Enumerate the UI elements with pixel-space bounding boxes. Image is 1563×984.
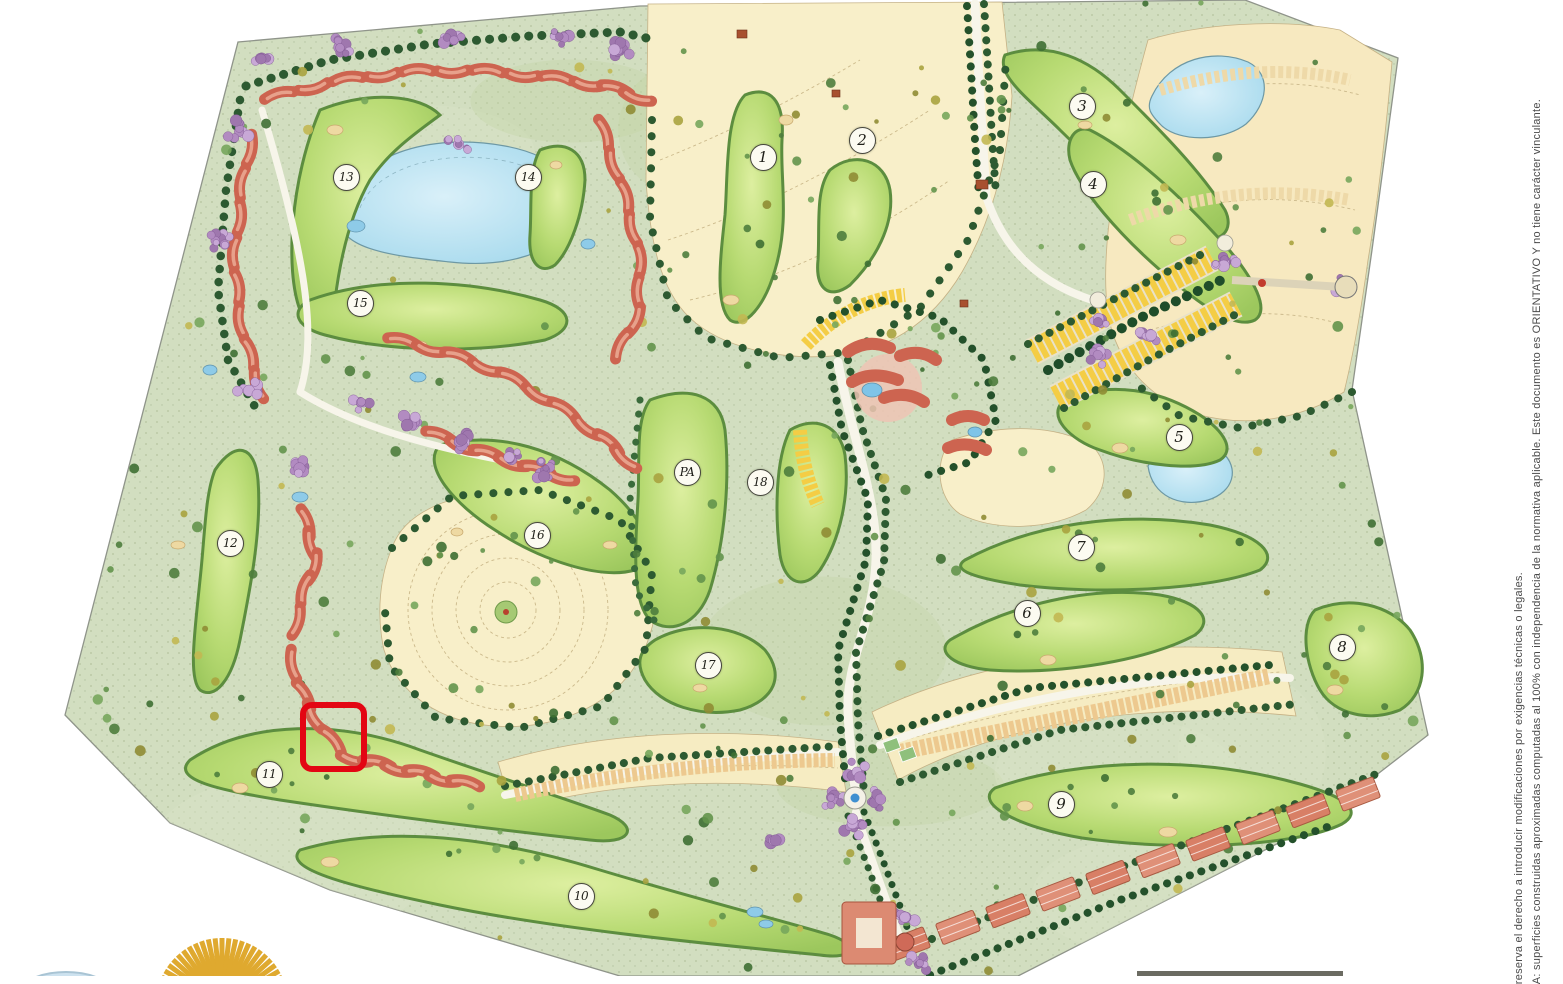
hole-marker-8: 8 — [1329, 634, 1356, 661]
disclaimer-line-1: A: superficies construidas aproximadas c… — [1531, 99, 1543, 984]
hole-marker-label: 13 — [339, 170, 353, 184]
hole-marker-label: 11 — [262, 767, 276, 781]
garden-plaza-1 — [1090, 292, 1106, 308]
clubhouse-pool — [862, 383, 882, 397]
hole-marker-label: 15 — [353, 296, 367, 310]
hole-marker-PA: PA — [674, 459, 701, 486]
hole-marker-label: 7 — [1076, 538, 1086, 556]
disclaimer-line-2: reserva el derecho a introducir modifica… — [1513, 572, 1525, 984]
hole-marker-13: 13 — [333, 164, 360, 191]
masterplan-stage: 123456789101112131415161718PA A: superfi… — [0, 0, 1563, 976]
hole-marker-2: 2 — [849, 127, 876, 154]
hole-marker-4: 4 — [1080, 171, 1107, 198]
hole-marker-1: 1 — [750, 144, 777, 171]
garden-plaza-2 — [1217, 235, 1233, 251]
hole-marker-16: 16 — [524, 522, 551, 549]
hole-marker-label: 9 — [1056, 795, 1066, 813]
hole-marker-12: 12 — [217, 530, 244, 557]
hole-marker-5: 5 — [1166, 424, 1193, 451]
hole-marker-label: 1 — [758, 148, 768, 166]
globe-logo-fragment — [14, 972, 118, 976]
hole-marker-18: 18 — [747, 469, 774, 496]
highlight-rectangle[interactable] — [300, 702, 367, 772]
hole-marker-10: 10 — [568, 883, 595, 910]
hole-marker-label: 4 — [1088, 175, 1098, 193]
hole-marker-label: 14 — [521, 170, 535, 184]
hole-marker-label: 5 — [1174, 428, 1184, 446]
hole-marker-14: 14 — [515, 164, 542, 191]
hole-marker-7: 7 — [1068, 534, 1095, 561]
hole-marker-9: 9 — [1048, 791, 1075, 818]
hole-marker-17: 17 — [695, 652, 722, 679]
roundabout-fountain — [851, 794, 860, 803]
monument-circle — [896, 933, 914, 951]
hole-marker-3: 3 — [1069, 93, 1096, 120]
sun-logo — [156, 938, 287, 976]
hole-marker-label: 10 — [574, 889, 588, 903]
hole-marker-label: PA — [680, 465, 695, 479]
hole-marker-label: 16 — [530, 528, 544, 542]
hole-marker-6: 6 — [1014, 600, 1041, 627]
hole-marker-label: 6 — [1022, 604, 1032, 622]
masterplan-artwork — [0, 0, 1563, 976]
hole-marker-label: 18 — [753, 475, 767, 489]
hotel-courtyard — [856, 918, 882, 948]
hole-marker-label: 3 — [1077, 97, 1087, 115]
hole-marker-15: 15 — [347, 290, 374, 317]
hole-marker-label: 17 — [701, 658, 715, 672]
hole-marker-label: 12 — [223, 536, 237, 550]
obelisk — [1258, 279, 1266, 287]
bottom-edge-artifact — [1137, 971, 1343, 976]
axis-end-plaza — [1335, 276, 1357, 298]
hole-marker-label: 2 — [857, 131, 867, 149]
hole-marker-11: 11 — [256, 761, 283, 788]
hole-marker-label: 8 — [1337, 638, 1347, 656]
